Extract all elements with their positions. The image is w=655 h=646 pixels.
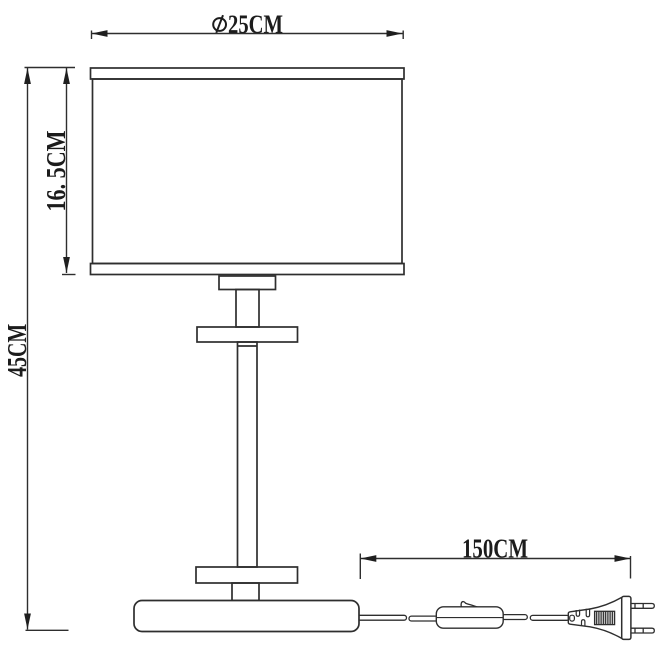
- svg-text:16. 5CM: 16. 5CM: [41, 131, 71, 212]
- svg-text:150CM: 150CM: [462, 534, 528, 564]
- svg-text:45CM: 45CM: [2, 324, 32, 377]
- svg-text:25CM: 25CM: [228, 10, 283, 39]
